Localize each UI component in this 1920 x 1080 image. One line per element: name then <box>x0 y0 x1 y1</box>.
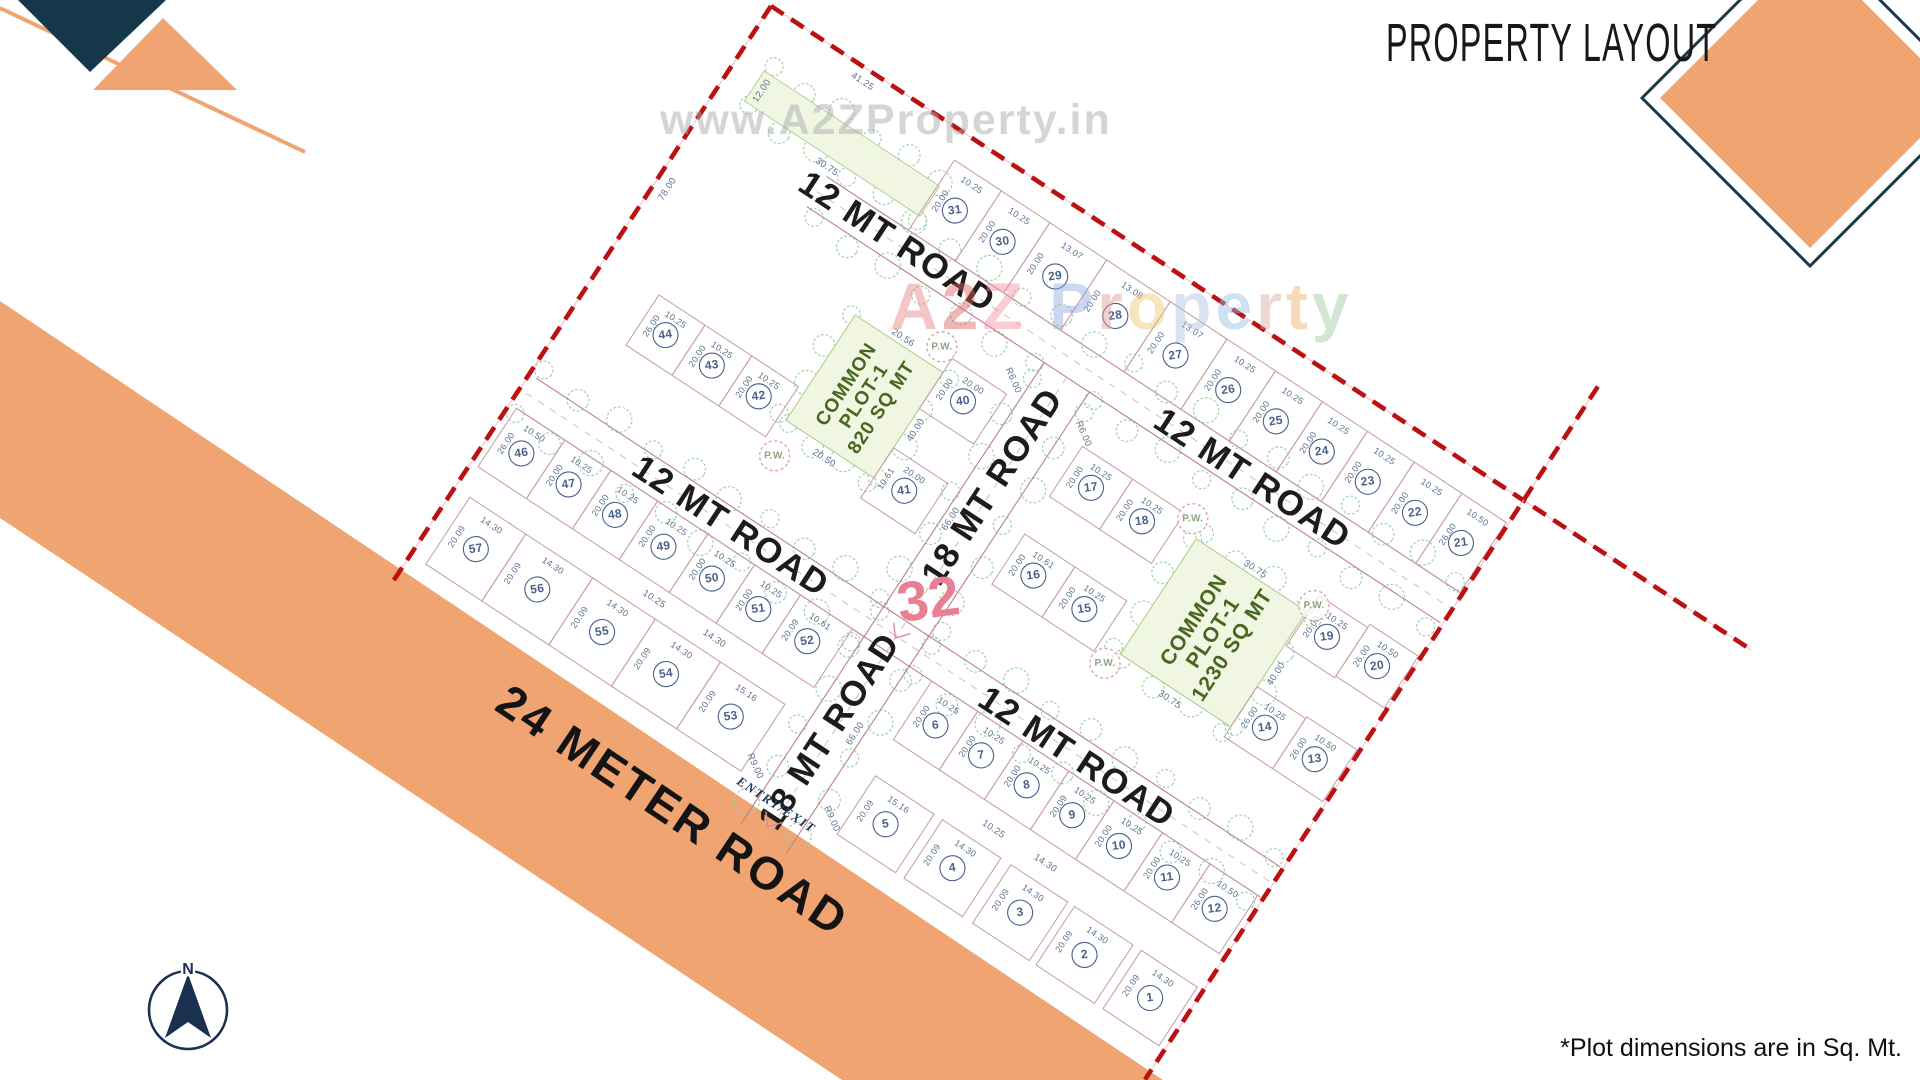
svg-text:31: 31 <box>947 202 963 218</box>
survey-number: 32 <box>893 562 964 635</box>
svg-text:52: 52 <box>799 632 815 648</box>
svg-text:11: 11 <box>1159 869 1174 885</box>
plot-57: 5714.3020.09 <box>426 497 526 601</box>
road-label: 12 MT ROAD <box>625 448 836 605</box>
svg-text:27: 27 <box>1168 347 1184 363</box>
watermark-letter: r <box>1256 269 1286 343</box>
tree-icon <box>1368 519 1398 549</box>
tree-icon <box>602 402 637 437</box>
svg-text:49: 49 <box>655 538 671 554</box>
tree-icon <box>531 358 556 383</box>
tree-icon <box>1112 416 1142 446</box>
svg-text:10: 10 <box>1111 837 1127 853</box>
svg-text:13: 13 <box>1307 751 1323 767</box>
svg-text:14.30: 14.30 <box>701 627 728 650</box>
plot-13: 1310.5026.00 <box>1273 717 1357 802</box>
watermark-letter <box>1027 269 1049 343</box>
north-arrow-icon <box>165 974 211 1038</box>
svg-text:10.25: 10.25 <box>980 818 1007 841</box>
svg-text:46: 46 <box>513 445 529 461</box>
tree-icon <box>1336 563 1366 593</box>
plot-2: 214.3020.09 <box>1036 906 1133 1003</box>
svg-text:20.09: 20.09 <box>854 798 876 824</box>
svg-text:18: 18 <box>1134 513 1150 529</box>
plot-1: 114.3020.09 <box>1103 950 1197 1045</box>
tree-icon <box>563 385 593 415</box>
plot-22: 2210.2520.00 <box>1368 462 1462 564</box>
watermark-letter: o <box>1127 269 1171 343</box>
compass-north-label: N <box>182 961 194 978</box>
svg-text:P.W.: P.W. <box>1303 600 1324 611</box>
svg-text:51: 51 <box>750 600 766 616</box>
svg-text:16: 16 <box>1025 567 1041 583</box>
svg-text:P.W.: P.W. <box>1094 658 1115 669</box>
svg-text:20.09: 20.09 <box>502 560 524 586</box>
svg-text:47: 47 <box>561 476 577 492</box>
svg-text:P.W.: P.W. <box>764 450 785 461</box>
property-layout-page: { "title": "PROPERTY LAYOUT", "footnote"… <box>0 0 1920 1080</box>
watermark-letter: p <box>1171 269 1215 343</box>
svg-text:30: 30 <box>995 233 1011 249</box>
svg-text:R6.00: R6.00 <box>1003 366 1024 395</box>
svg-text:20.09: 20.09 <box>1053 929 1075 955</box>
svg-text:12: 12 <box>1207 900 1223 916</box>
plat-layer: 3110.2520.003010.2520.002913.0720.002813… <box>0 0 1920 1080</box>
watermark-url: www.A2ZProperty.in <box>660 96 1112 145</box>
svg-text:54: 54 <box>658 665 674 681</box>
svg-text:22: 22 <box>1407 504 1423 520</box>
plot-12: 1210.5026.00 <box>1172 864 1258 954</box>
svg-text:20.09: 20.09 <box>921 842 943 868</box>
north-compass: N <box>128 946 248 1071</box>
plot-42: 4210.2520.00 <box>719 356 799 437</box>
svg-text:55: 55 <box>594 623 610 639</box>
svg-text:43: 43 <box>704 357 720 373</box>
svg-text:14: 14 <box>1257 719 1273 735</box>
tree-icon <box>1184 794 1214 824</box>
watermark-letter: P <box>1049 269 1097 343</box>
svg-text:20.09: 20.09 <box>696 688 718 714</box>
plot-21: 2110.5026.00 <box>1416 493 1506 592</box>
svg-text:23: 23 <box>1360 473 1376 489</box>
green-areas-layer <box>604 71 1391 727</box>
svg-text:42: 42 <box>751 388 767 404</box>
svg-text:10.25: 10.25 <box>641 588 668 611</box>
watermark-letter: r <box>1097 269 1127 343</box>
plot-18: 1810.2520.00 <box>1100 479 1185 563</box>
plot-20: 2010.5026.00 <box>1336 624 1419 708</box>
svg-text:17: 17 <box>1083 479 1099 495</box>
footnote: *Plot dimensions are in Sq. Mt. <box>1560 1034 1902 1063</box>
watermark-letter: A <box>890 269 942 343</box>
watermark-letter: e <box>1215 269 1256 343</box>
watermark-letter: y <box>1312 269 1353 343</box>
svg-text:53: 53 <box>723 708 739 724</box>
tree-icon <box>1374 579 1409 614</box>
svg-text:50: 50 <box>704 570 720 586</box>
watermark-letter: 2 <box>942 269 983 343</box>
svg-text:25: 25 <box>1268 413 1284 429</box>
svg-text:15: 15 <box>1076 600 1092 616</box>
tree-icon <box>960 646 990 676</box>
tree-icon <box>1121 350 1146 375</box>
svg-text:R9.00: R9.00 <box>821 804 842 833</box>
watermark-letter: Z <box>982 269 1026 343</box>
svg-text:14.30: 14.30 <box>1032 852 1059 875</box>
page-title: PROPERTY LAYOUT <box>1386 12 1717 74</box>
svg-text:21: 21 <box>1453 534 1469 550</box>
svg-text:20: 20 <box>1369 657 1385 673</box>
svg-text:20.09: 20.09 <box>631 646 653 672</box>
plat-rotated-group: 3110.2520.003010.2520.002913.0720.002813… <box>387 0 1826 1080</box>
svg-text:44: 44 <box>658 326 674 342</box>
watermark-brand: A2Z Property <box>890 268 1353 344</box>
svg-text:40: 40 <box>955 393 971 409</box>
svg-text:19: 19 <box>1319 628 1335 644</box>
svg-text:24: 24 <box>1314 443 1330 459</box>
svg-text:56: 56 <box>529 581 545 597</box>
svg-text:57: 57 <box>468 540 484 556</box>
svg-text:41: 41 <box>896 482 912 498</box>
tree-icon <box>828 551 863 586</box>
svg-text:20.09: 20.09 <box>569 604 591 630</box>
plot-5: 515.1620.09 <box>837 776 934 873</box>
svg-text:R6.00: R6.00 <box>1073 419 1094 448</box>
tree-icon <box>1223 810 1258 845</box>
svg-text:48: 48 <box>607 506 623 522</box>
svg-text:26: 26 <box>1220 381 1236 397</box>
watermark-letter: t <box>1286 269 1312 343</box>
tree-icon <box>967 553 997 583</box>
plot-53: 5315.1620.09 <box>677 662 785 771</box>
labels-layer: COMMONPLOT-1820 SQ MTCOMMONPLOT-11230 SQ… <box>391 0 1826 1080</box>
svg-text:P.W.: P.W. <box>1182 513 1203 524</box>
